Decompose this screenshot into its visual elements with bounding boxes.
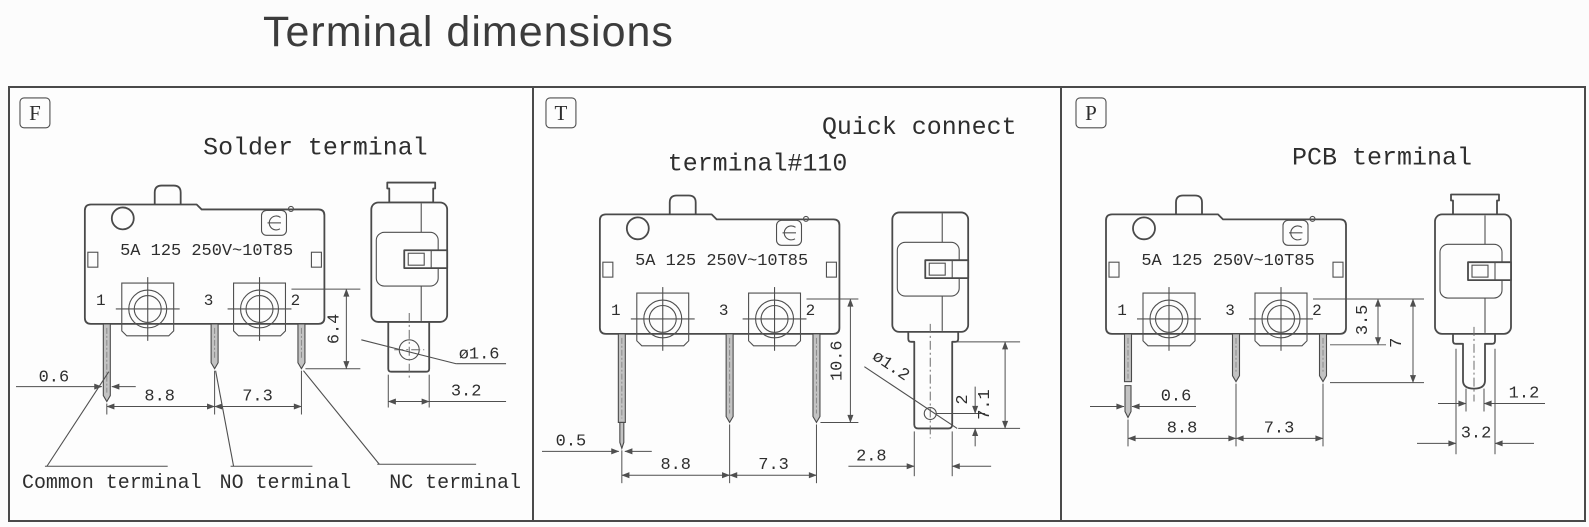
dimension-pin-width: 0.5: [542, 432, 652, 451]
label-common-terminal: Common terminal: [22, 471, 202, 494]
plunger-side: [1451, 195, 1499, 215]
dimension-span-right: 7.3: [730, 424, 817, 483]
dim-label: 1.2: [1509, 385, 1540, 404]
dimension-pin-thickness: 1.2: [1438, 385, 1545, 412]
pin-number-1: 1: [1117, 302, 1127, 320]
dim-label: 7.3: [242, 388, 273, 407]
dim-label: 6.4: [325, 314, 344, 344]
panel-pcb-terminal: P PCB terminal 5A 125 250V~10T85 1 3 2: [1060, 88, 1584, 520]
pin-number-2: 2: [291, 292, 301, 310]
dim-label: 3.2: [451, 383, 482, 402]
panel-quick-connect: T Quick connect terminal#110 5A 125 250V…: [532, 88, 1060, 520]
label-no-terminal: NO terminal: [220, 471, 352, 494]
pin-number-1: 1: [96, 292, 106, 310]
page-title: Terminal dimensions: [263, 8, 674, 57]
panel-solder-terminal: F Solder terminal 5A 125 250V~10T85 1 3 …: [10, 88, 532, 520]
side-view: ø1.2 2 7.1: [848, 212, 1020, 476]
dim-label: 3.5: [1354, 305, 1373, 335]
front-view: 5A 125 250V~10T85 1 3 2: [600, 196, 840, 449]
panel-t-drawing: T Quick connect terminal#110 5A 125 250V…: [534, 88, 1060, 520]
dimension-span-left: 8.8: [107, 371, 215, 415]
dimension-blade-width: 2.8: [848, 431, 991, 476]
panel-title-line2: terminal#110: [668, 151, 848, 179]
badge-t: T: [546, 98, 576, 128]
pin-number-3: 3: [1225, 302, 1235, 320]
dim-label: 2.8: [856, 447, 887, 466]
badge-p: P: [1076, 98, 1106, 128]
pin-number-1: 1: [611, 302, 621, 320]
badge-letter: F: [29, 101, 41, 125]
dim-label: 3.2: [1461, 424, 1492, 443]
dim-label: 8.8: [660, 456, 691, 475]
dimension-span-left: 8.8: [622, 424, 730, 483]
dimension-blade-length: 7.1: [957, 342, 1020, 429]
panel-f-drawing: F Solder terminal 5A 125 250V~10T85 1 3 …: [10, 88, 532, 520]
dim-label: ø1.2: [868, 348, 912, 386]
panel-title-line1: Quick connect: [822, 114, 1017, 142]
dim-label: 0.5: [556, 432, 587, 451]
dim-label: 8.8: [144, 388, 175, 407]
dimension-blade-width: 3.2: [388, 375, 506, 408]
panel-p-drawing: P PCB terminal 5A 125 250V~10T85 1 3 2: [1062, 88, 1584, 520]
dim-label: 2: [954, 394, 973, 404]
panel-title: Solder terminal: [203, 135, 428, 163]
dimension-hole-dia: ø1.6: [361, 340, 506, 365]
dim-label: 8.8: [1167, 419, 1198, 438]
dimension-span-right: 7.3: [1236, 384, 1323, 447]
rating-text: 5A 125 250V~10T85: [120, 242, 293, 261]
panel-table: F Solder terminal 5A 125 250V~10T85 1 3 …: [8, 86, 1586, 522]
label-nc-terminal: NC terminal: [389, 471, 521, 494]
rating-text: 5A 125 250V~10T85: [635, 252, 808, 271]
dim-label: 7.1: [976, 389, 995, 419]
dimension-pin-width: 0.6: [1090, 388, 1196, 407]
dim-label: 10.6: [828, 340, 847, 381]
side-view: ø1.6 3.2: [361, 183, 506, 408]
badge-f: F: [20, 98, 50, 128]
panel-title: PCB terminal: [1292, 145, 1472, 173]
plunger-side: [387, 183, 435, 203]
pin-number-3: 3: [719, 302, 729, 320]
badge-letter: T: [555, 101, 568, 125]
pin-number-2: 2: [806, 302, 816, 320]
pin-number-3: 3: [204, 292, 214, 310]
dim-label: 7.3: [1264, 419, 1295, 438]
dimension-span-right: 7.3: [215, 371, 302, 415]
dim-label: 0.6: [1161, 388, 1192, 407]
side-view: 1.2 3.2: [1417, 195, 1545, 455]
front-view: 5A 125 250V~10T85 1 3 2: [1106, 196, 1346, 418]
front-view: 5A 125 250V~10T85 1 3 2: [85, 186, 325, 402]
dimension-pin-width: 0.6: [16, 369, 136, 388]
dim-label: 7.3: [758, 456, 789, 475]
dim-label: 7: [1388, 338, 1407, 348]
dim-label: 0.6: [39, 369, 70, 388]
dim-label: ø1.6: [459, 346, 500, 365]
badge-letter: P: [1085, 101, 1097, 125]
drawing-sheet: Terminal dimensions: [0, 0, 1589, 527]
pin-number-2: 2: [1312, 302, 1322, 320]
rating-text: 5A 125 250V~10T85: [1141, 252, 1314, 271]
